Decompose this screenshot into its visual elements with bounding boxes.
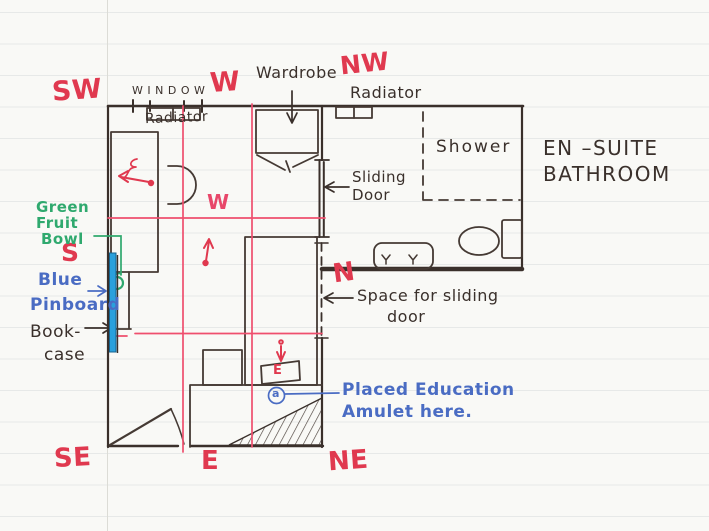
desk-box xyxy=(111,132,158,272)
toilet-cistern xyxy=(502,220,522,258)
compass-east-bottom-label: E xyxy=(201,447,219,476)
floorplan-page: SW W NW S W N SE E NE E WINDOW Radiator … xyxy=(0,0,709,531)
compass-west-mid-label: W xyxy=(207,191,230,213)
bath-taps xyxy=(382,255,417,264)
door-leaf xyxy=(110,409,171,445)
bedside-table xyxy=(203,350,242,385)
desk-arrow-dot xyxy=(149,181,153,185)
compass-sw-label: SW xyxy=(51,74,103,107)
bed-e-marker-label: E xyxy=(273,364,282,378)
wardrobe-box xyxy=(256,110,318,153)
radiator-window-label: Radiator xyxy=(145,110,209,128)
ensuite-title-line2: BATHROOM xyxy=(543,163,671,185)
compass-nw-label: NW xyxy=(339,47,391,80)
compass-west-top-label: W xyxy=(209,67,241,99)
sliding-door-ticks xyxy=(315,160,329,237)
wardrobe-label: Wardrobe xyxy=(256,64,337,82)
blue-pinboard-label-line2: Pinboard xyxy=(30,296,120,315)
ensuite-title-line1: EN –SUITE xyxy=(543,137,659,159)
e-box-down-arrow-icon xyxy=(277,346,285,361)
amulet-leader-line xyxy=(285,393,339,394)
shower-label: Shower xyxy=(436,138,511,157)
door-swing-arc xyxy=(171,409,184,444)
hatched-area xyxy=(229,398,322,445)
desk-arrow-squiggle xyxy=(125,159,137,177)
green-fruit-bowl-label-line3: Bowl xyxy=(41,231,84,248)
toilet-bowl xyxy=(459,227,499,255)
amulet-label-line2: Amulet here. xyxy=(342,403,472,422)
compass-se-label: SE xyxy=(53,443,92,474)
amulet-label-line1: Placed Education xyxy=(342,381,515,400)
wardrobe-doors xyxy=(257,155,318,172)
sliding-space-arrow-icon xyxy=(324,293,353,303)
center-arrow-dot xyxy=(203,261,207,265)
blue-pinboard-label-line1: Blue xyxy=(38,271,82,290)
sliding-space-label-line1: Space for sliding xyxy=(357,287,499,305)
bookcase-label-line1: Book- xyxy=(30,323,81,342)
sliding-door-label-line2: Door xyxy=(352,187,390,204)
sliding-space-label-line2: door xyxy=(387,308,425,326)
sliding-door-panel xyxy=(320,160,324,237)
e-arrow-dot xyxy=(279,340,283,344)
center-up-arrow-icon xyxy=(204,239,213,261)
compass-ne-label: NE xyxy=(327,446,369,477)
bookcase-label-line2: case xyxy=(44,346,85,365)
chair-shape xyxy=(168,166,196,204)
window-label: WINDOW xyxy=(132,85,209,97)
sliding-door-label-line1: Sliding xyxy=(352,169,406,186)
amulet-a-marker-label: a xyxy=(272,388,280,400)
desk-direction-arrow-icon xyxy=(119,171,149,182)
compass-north-label: N xyxy=(331,258,357,289)
radiator-ensuite-label: Radiator xyxy=(350,84,422,102)
sliding-door-arrow-icon xyxy=(325,182,349,192)
